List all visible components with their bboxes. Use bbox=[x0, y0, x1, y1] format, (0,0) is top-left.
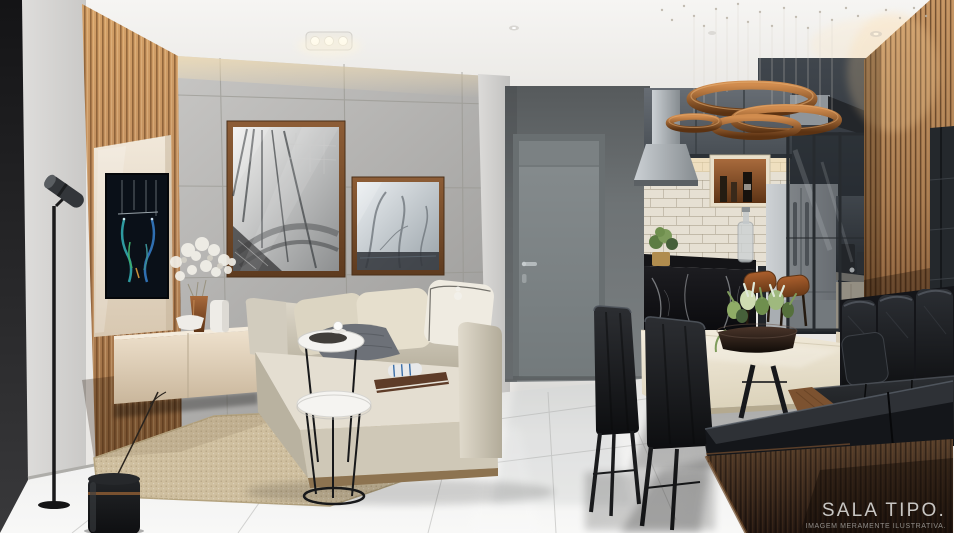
sofa-right-arm bbox=[458, 322, 502, 458]
recessed-spotlight-fixture bbox=[297, 32, 361, 56]
white-bowl bbox=[176, 315, 204, 330]
caption: SALA TIPO. IMAGEM MERAMENTE ILUSTRATIVA. bbox=[806, 501, 946, 530]
framed-art-large bbox=[227, 121, 345, 277]
banquette-pillow bbox=[841, 331, 890, 386]
sofa-left-arm bbox=[246, 298, 288, 360]
caption-title: SALA TIPO. bbox=[806, 501, 946, 520]
caption-subtitle: IMAGEM MERAMENTE ILUSTRATIVA. bbox=[806, 523, 946, 530]
door-keyplate bbox=[522, 274, 527, 283]
centerpiece-bowl bbox=[718, 326, 797, 352]
open-shelf-niche bbox=[710, 155, 770, 207]
tv-screen bbox=[106, 174, 168, 298]
apartment-render: SALA TIPO. IMAGEM MERAMENTE ILUSTRATIVA. bbox=[0, 0, 954, 533]
entry-door bbox=[513, 134, 605, 380]
framed-art-small bbox=[352, 177, 444, 275]
scene-illustration bbox=[0, 0, 954, 533]
